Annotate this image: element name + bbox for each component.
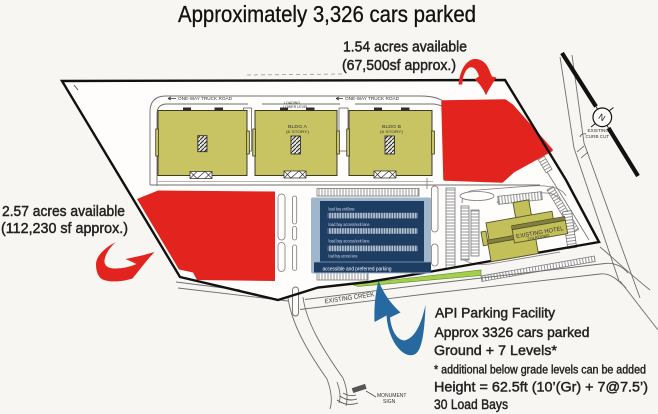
svg-text:Approximately 3,326 cars parke: Approximately 3,326 cars parked: [178, 1, 476, 27]
svg-text:1.54 acres available: 1.54 acres available: [343, 40, 467, 56]
svg-text:* additional below grade level: * additional below grade levels can be a…: [434, 365, 646, 377]
svg-text:API Parking Facility: API Parking Facility: [435, 305, 555, 321]
svg-text:(67,500sf approx.): (67,500sf approx.): [342, 58, 456, 74]
svg-text:ONE-WAY TRUCK ROAD: ONE-WAY TRUCK ROAD: [178, 96, 232, 101]
svg-text:load bay exit/lane: load bay exit/lane: [329, 206, 356, 211]
svg-text:EXISTING: EXISTING: [588, 128, 610, 133]
svg-text:load bay access/exit lane: load bay access/exit lane: [329, 239, 371, 244]
svg-text:SIGN: SIGN: [383, 399, 396, 405]
svg-text:(6 STORY): (6 STORY): [380, 129, 404, 134]
svg-text:30 Load Bays: 30 Load Bays: [434, 396, 508, 412]
svg-text:2.57 acres available: 2.57 acres available: [2, 204, 125, 220]
svg-text:accessible and preferred parki: accessible and preferred parking: [323, 266, 392, 272]
svg-text:Ground + 7 Levels*: Ground + 7 Levels*: [434, 342, 558, 358]
svg-text:(6 STORY): (6 STORY): [286, 129, 310, 134]
svg-text:load bay access lane: load bay access lane: [329, 254, 358, 259]
svg-text:Approx 3326 cars parked: Approx 3326 cars parked: [435, 324, 590, 340]
svg-text:ONE-WAY TRUCK ROAD: ONE-WAY TRUCK ROAD: [345, 96, 399, 101]
svg-text:CURB CUT: CURB CUT: [586, 134, 610, 139]
svg-text:(112,230 sf approx.): (112,230 sf approx.): [1, 221, 128, 237]
svg-text:Height = 62.5ft (10’(Gr) + 7@: Height = 62.5ft (10’(Gr) + 7@7.5’): [434, 379, 648, 395]
svg-text:load bay access/exit lane: load bay access/exit lane: [329, 222, 371, 227]
